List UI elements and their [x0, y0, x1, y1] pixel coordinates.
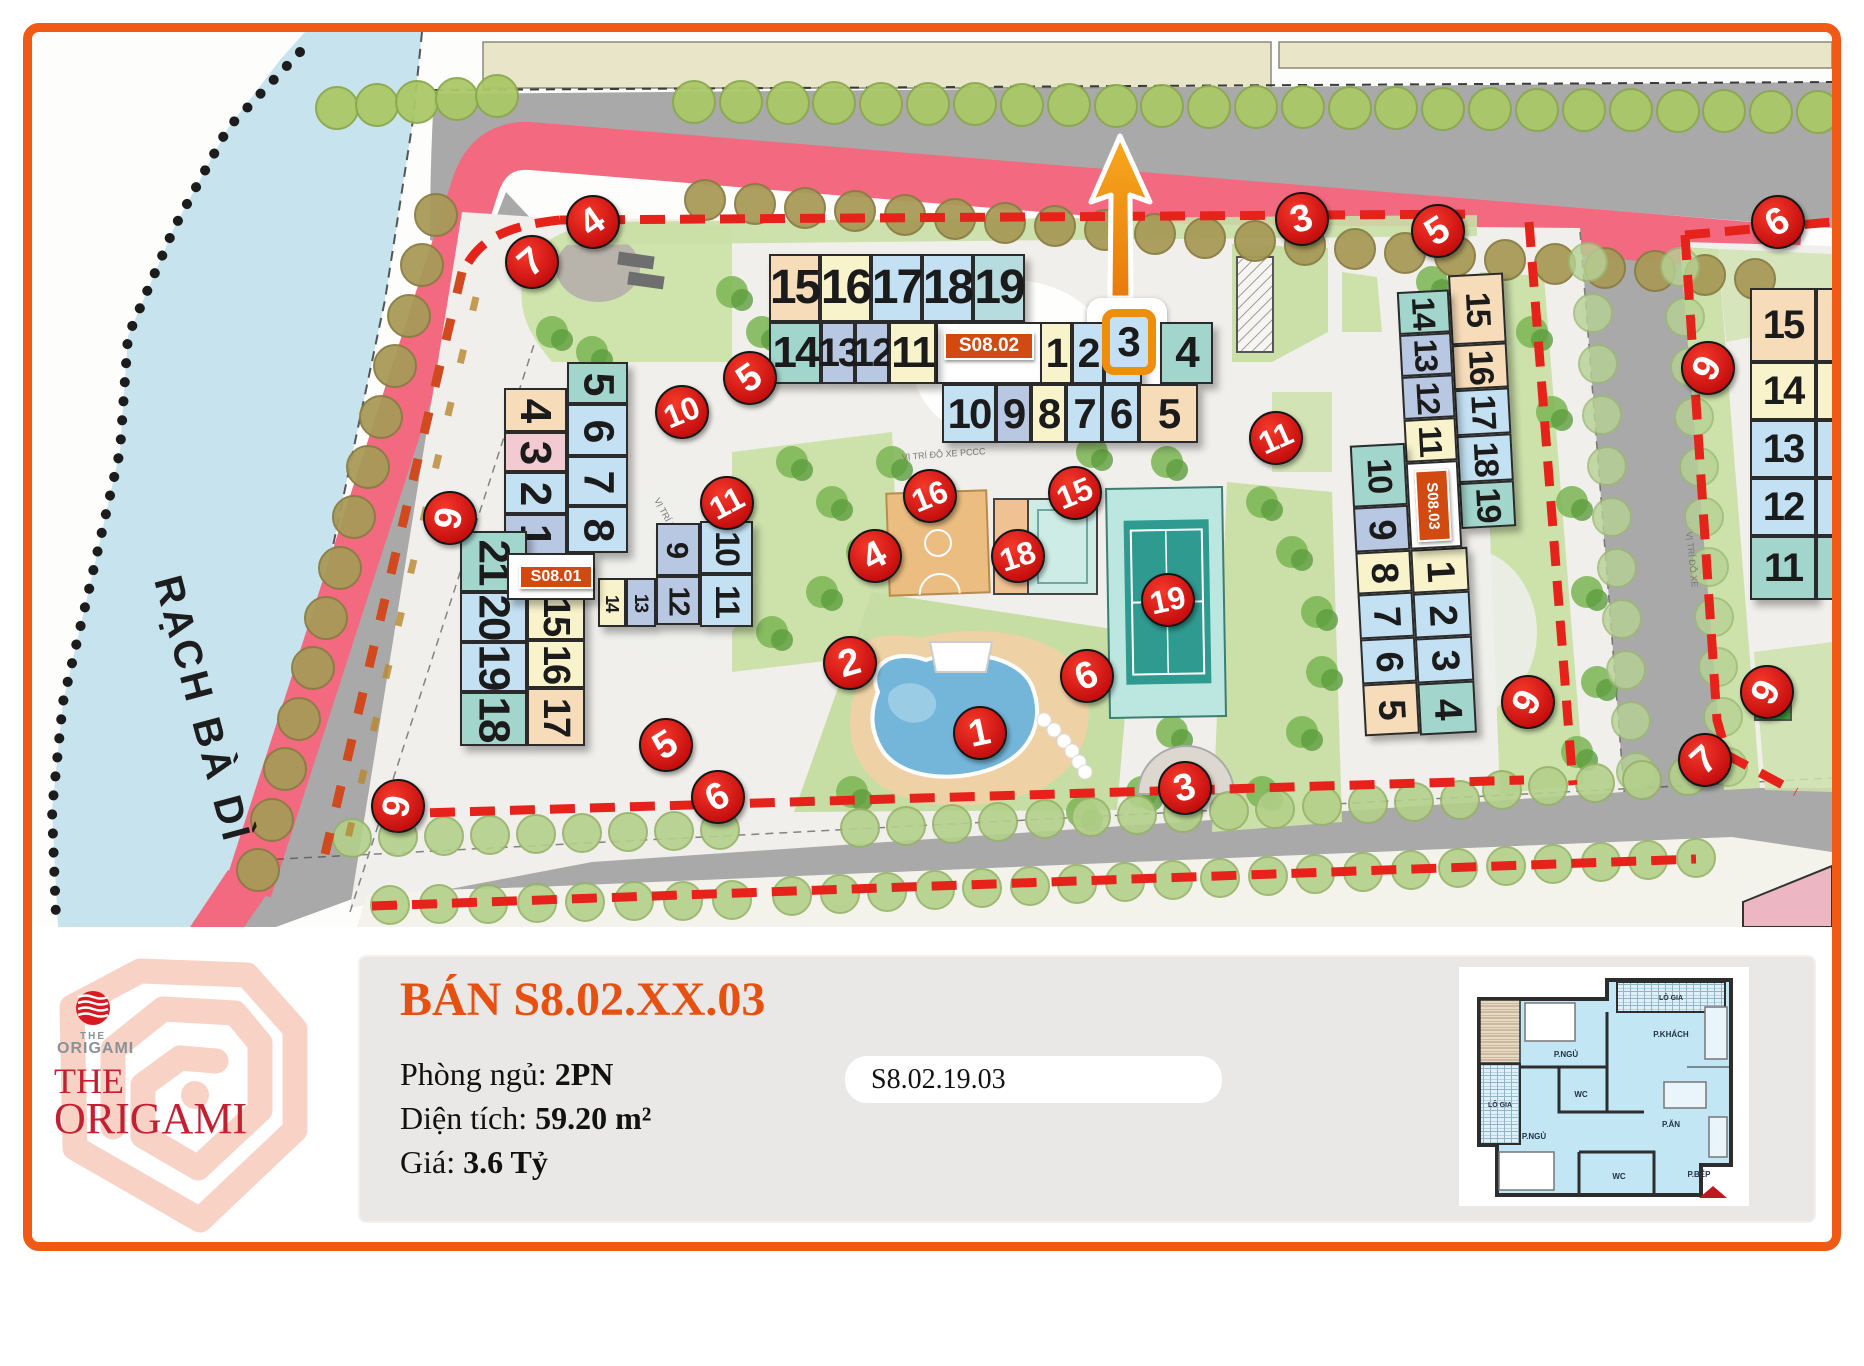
svg-text:P.BẾP: P.BẾP	[1688, 1169, 1712, 1179]
svg-text:WC: WC	[1612, 1172, 1626, 1181]
svg-text:WC: WC	[1574, 1090, 1588, 1099]
svg-text:ORIGAMI: ORIGAMI	[57, 1040, 134, 1057]
svg-text:P.ĂN: P.ĂN	[1662, 1120, 1680, 1129]
svg-text:LÔ GIA: LÔ GIA	[1659, 993, 1683, 1002]
svg-text:P.NGỦ: P.NGỦ	[1554, 1050, 1579, 1059]
svg-text:LÔ GIA: LÔ GIA	[1488, 1100, 1512, 1109]
svg-text:P.NGỦ: P.NGỦ	[1522, 1132, 1547, 1141]
svg-text:ORIGAMI: ORIGAMI	[54, 1094, 247, 1143]
svg-text:P.KHÁCH: P.KHÁCH	[1653, 1030, 1689, 1039]
